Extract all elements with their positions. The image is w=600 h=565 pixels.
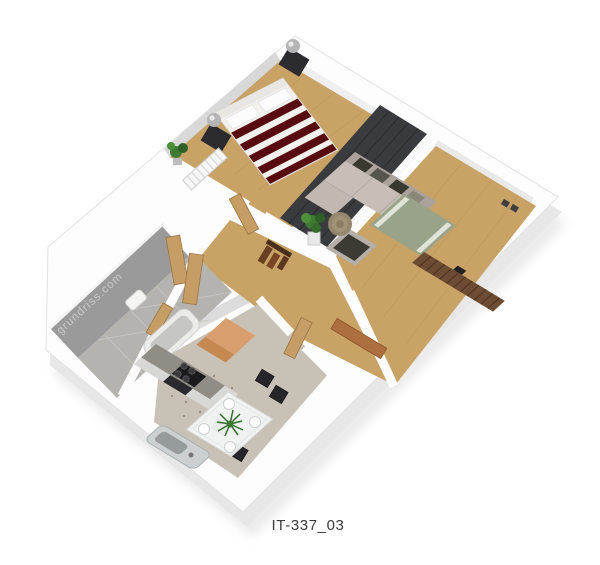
ball-lamp-right <box>286 39 300 53</box>
ball-lamp-left <box>207 113 221 127</box>
faucet <box>189 453 194 458</box>
wicker-ottoman <box>328 212 352 236</box>
plant-pot <box>308 232 320 245</box>
floorplan-render: grundriss.com <box>0 0 600 565</box>
lamp-highlight-2 <box>209 115 214 120</box>
plan-label: IT-337_03 <box>272 517 345 534</box>
lamp-highlight <box>288 41 293 46</box>
floorplan-canvas: grundriss.com <box>0 0 600 565</box>
